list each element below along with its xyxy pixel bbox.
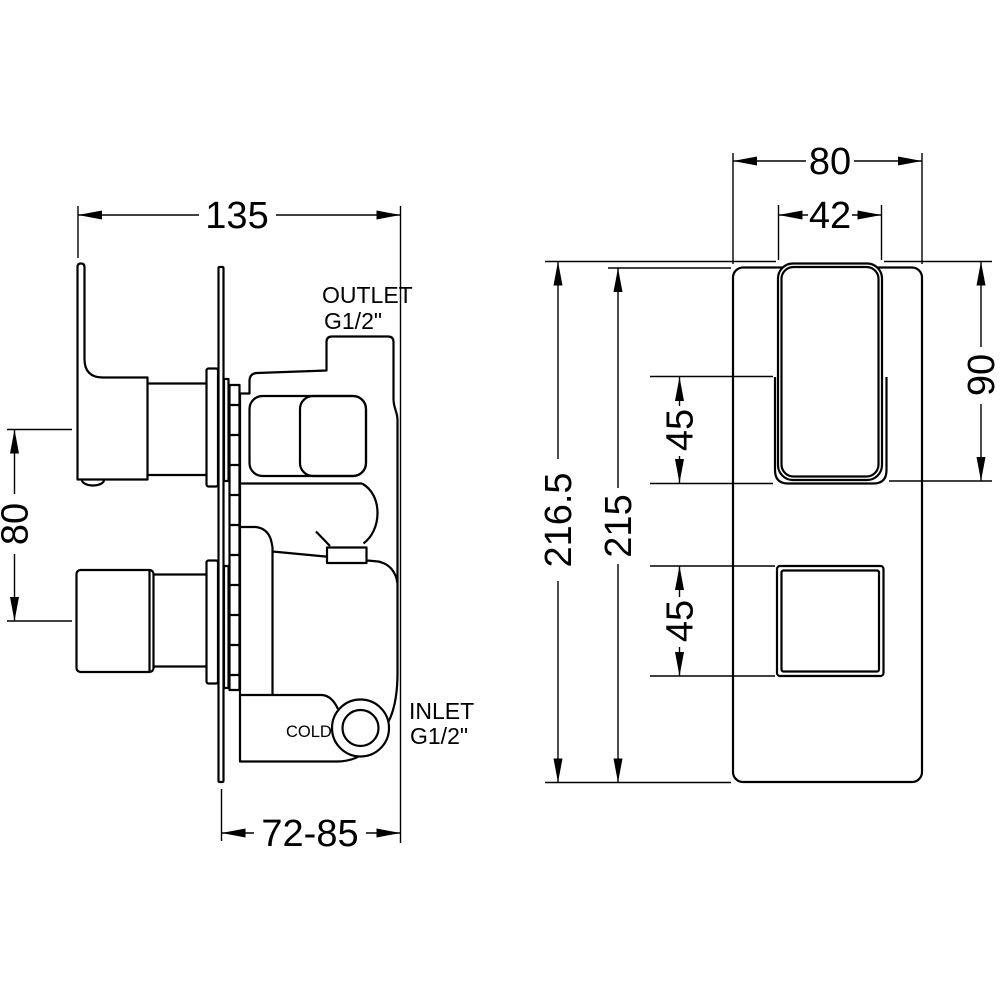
- dim-72-85-arrow-right: [377, 829, 401, 838]
- dim-handle-width-arrow-right: [858, 211, 882, 220]
- dim-80-arrow-bottom: [10, 597, 19, 621]
- dim-135-arrow-left: [78, 211, 102, 220]
- dim-lower-handle-label: 45: [660, 600, 702, 642]
- lower-knob-side: [77, 570, 154, 672]
- dim-plate-width-label: 80: [809, 141, 851, 183]
- upper-gasket: [224, 379, 229, 481]
- dim-plate-height: 215: [598, 268, 731, 783]
- dim-72-85-label: 72-85: [261, 813, 358, 855]
- dim-plate-height-label: 215: [598, 494, 640, 557]
- cold-label: COLD: [286, 723, 332, 741]
- lower-handle-front: [777, 566, 884, 676]
- dim-handle-width-label: 42: [809, 195, 851, 237]
- lower-knob-stem: [154, 575, 207, 667]
- dim-total-height-arrow-bottom: [554, 759, 563, 783]
- dim-plate-width-arrow-left: [733, 157, 757, 166]
- dim-handle-height-arrow-bottom: [977, 457, 986, 481]
- dim-upper-recess-arrow-top: [675, 377, 684, 401]
- front-view: 80 42 216.5 215: [538, 141, 1000, 783]
- upper-handle-front: [778, 264, 882, 481]
- upper-handle-stem: [148, 384, 207, 476]
- dim-handle-height-arrow-top: [977, 262, 986, 286]
- dim-upper-recess-label: 45: [660, 409, 702, 451]
- shower-valve-dimension-drawing: 135 80 72-85 OUTLET G1/2" INLET G1/2" CO…: [0, 0, 1000, 1000]
- dim-72-85: 72-85: [222, 789, 401, 855]
- dim-total-height-arrow-top: [554, 262, 563, 286]
- technical-drawing-page: 135 80 72-85 OUTLET G1/2" INLET G1/2" CO…: [0, 0, 1000, 1000]
- dim-handle-width-arrow-left: [779, 211, 803, 220]
- dim-plate-width-arrow-right: [898, 157, 922, 166]
- dim-135-label: 135: [205, 195, 268, 237]
- dim-135-arrow-right: [377, 211, 401, 220]
- dim-plate-height-arrow-bottom: [614, 759, 623, 783]
- inlet-label: INLET: [409, 698, 474, 724]
- dim-80-arrow-top: [10, 430, 19, 454]
- dim-handle-height-label: 90: [961, 354, 1000, 396]
- dim-lower-handle-arrow-top: [675, 566, 684, 590]
- dim-upper-recess-arrow-bottom: [675, 459, 684, 483]
- dim-72-85-arrow-left: [222, 829, 246, 838]
- outlet-thread-label: G1/2": [324, 308, 382, 334]
- side-view: 135 80 72-85 OUTLET G1/2" INLET G1/2" CO…: [0, 195, 474, 855]
- dim-lower-handle-arrow-bottom: [675, 652, 684, 676]
- dim-plate-height-arrow-top: [614, 268, 623, 292]
- lower-escutcheon-flange: [207, 561, 219, 684]
- wall-plate-edge: [219, 267, 224, 782]
- inlet-port-outer-circle: [332, 700, 389, 757]
- temperature-stop-tab: [327, 548, 367, 564]
- lower-gasket: [224, 566, 229, 688]
- dim-80-spacing: 80: [0, 430, 72, 622]
- dim-80-spacing-label: 80: [0, 503, 37, 545]
- dim-total-height-label: 216.5: [538, 472, 580, 567]
- upper-cartridge: [250, 396, 367, 476]
- upper-handle-side: [78, 264, 148, 480]
- outlet-label: OUTLET: [322, 282, 413, 308]
- inlet-thread-label: G1/2": [410, 723, 468, 749]
- dim-handle-width: 42: [779, 195, 882, 260]
- upper-escutcheon-flange: [207, 369, 219, 487]
